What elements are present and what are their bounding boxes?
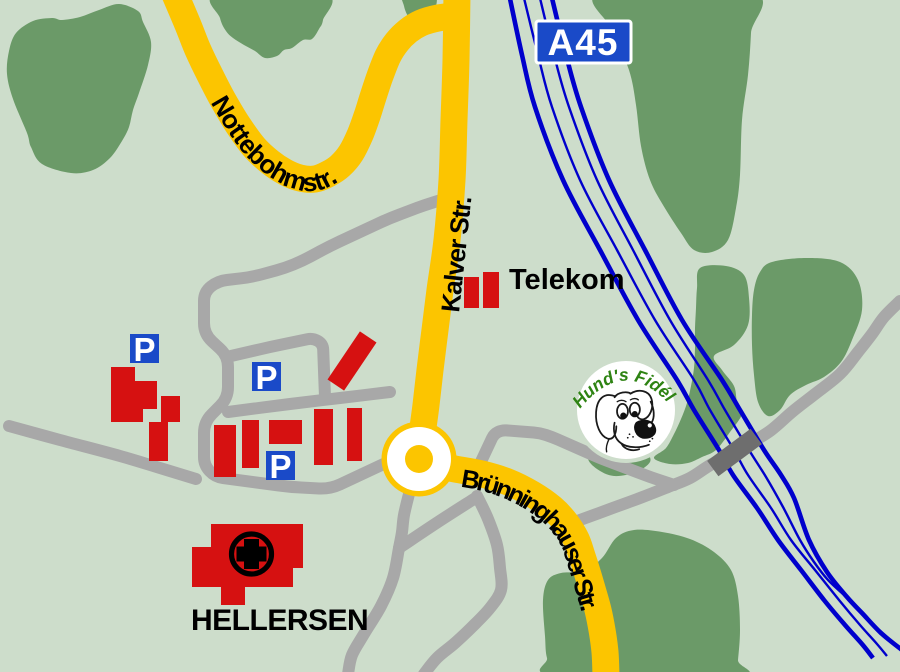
- svg-text:P: P: [255, 359, 277, 396]
- svg-text:P: P: [269, 448, 291, 485]
- svg-text:HELLERSEN: HELLERSEN: [191, 604, 368, 637]
- svg-text:P: P: [133, 331, 155, 368]
- svg-text:A45: A45: [548, 22, 619, 63]
- svg-text:Telekom: Telekom: [509, 264, 625, 296]
